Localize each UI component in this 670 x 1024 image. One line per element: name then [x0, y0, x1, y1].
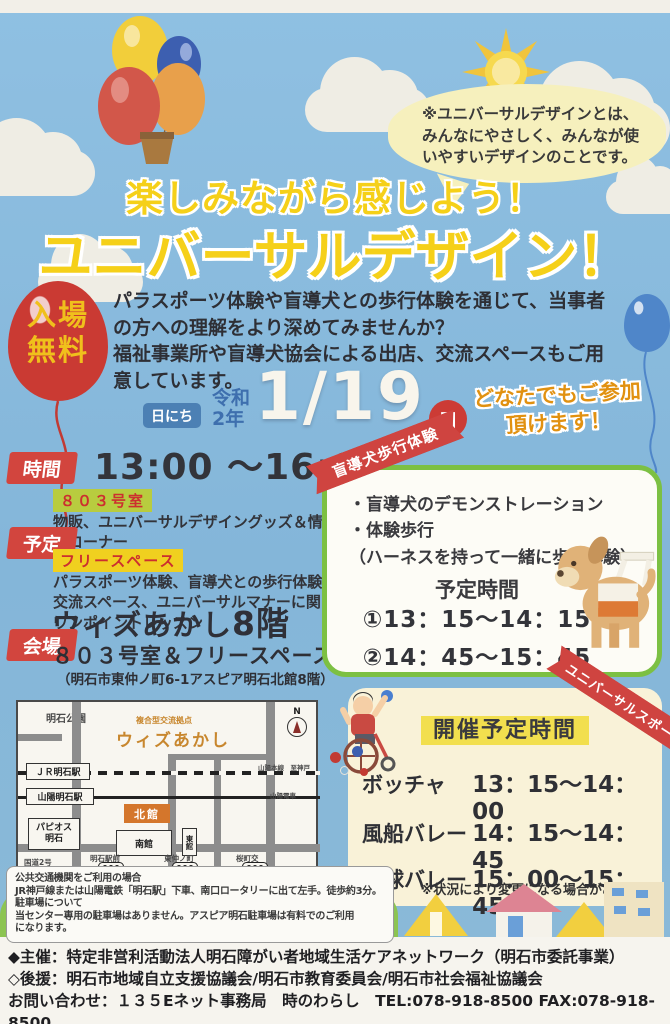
room-803-tag: ８０３号室 [53, 489, 152, 512]
access-map: 明石公園 複合型交流拠点 ウィズあかし N ＪＲ明石駅 山陽明石駅 山陽本線 至… [16, 700, 318, 868]
papios-line: パピオス [36, 823, 72, 834]
map-facility-tag: 複合型交流拠点 [136, 715, 192, 726]
access-line: JR神戸線または山陽電鉄「明石駅」下車、南口ロータリーに出て左手。徒歩約3分。 [15, 886, 385, 899]
house-door [508, 916, 523, 937]
map-station-sanyo: 山陽明石駅 [26, 788, 94, 805]
admission-line: 無料 [8, 333, 108, 368]
admission-line: 入場 [8, 298, 108, 333]
photo-paper-edge [0, 0, 670, 13]
time-label: 時間 [6, 452, 78, 484]
house-roof [486, 884, 562, 912]
intro-line: の方への理解をより深めてみませんか？ [113, 315, 665, 342]
event-date: 1/19 [255, 364, 425, 430]
venue-name: ウィズあかし8階 [52, 597, 290, 645]
venue-name-text: ウィズあかし [52, 608, 232, 642]
era-line: 2年 [212, 409, 250, 430]
access-line: 駐車場について [15, 898, 385, 911]
map-line-sanyo: 山陽電車 [270, 790, 296, 800]
intro-line: パラスポーツ体験や盲導犬との歩行体験を通じて、当事者 [113, 288, 665, 315]
organizer-line: ◆主催：特定非営利活動法人明石障がい者地域生活ケアネットワーク（明石市委託事業） [8, 946, 662, 968]
wheelchair-player-icon [335, 688, 399, 776]
compass-icon: N [284, 707, 310, 737]
boccia-ball-red [360, 768, 368, 776]
boccia-ball-white [340, 766, 349, 775]
access-line: 公共交通機関をご利用の場合 [15, 873, 385, 886]
venue-address: （明石市東仲ノ町6-1アスピア明石北館8階） [57, 668, 334, 688]
tent-stripe [430, 912, 442, 936]
desc-line: 物販、ユニバーサルデザイングッズ＆情報展 [53, 512, 353, 532]
guide-dog-icon [551, 528, 663, 650]
bullet-line: ・盲導犬のデモンストレーション [349, 492, 637, 518]
map-north-building: 北館 [124, 804, 170, 823]
page-title: ユニバーサルデザイン！ [0, 212, 670, 291]
bubble-line: ※ユニバーサルデザインとは、 [422, 104, 648, 126]
boccia-ball-blue [352, 746, 363, 757]
map-east-building: 東館 [182, 828, 197, 856]
map-road [18, 734, 62, 741]
hot-air-balloon-icon [98, 14, 216, 172]
supporter-line: ◇後援：明石市地域自立支援協議会/明石市教育委員会/明石市社会福祉協議会 [8, 968, 662, 990]
house-body [496, 912, 552, 937]
window [612, 888, 624, 896]
bubble-line: みんなにやさしく、みんなが使 [422, 126, 648, 148]
map-road [168, 754, 275, 760]
date-label-badge: 日にち [143, 403, 201, 428]
map-facility-name: ウィズあかし [116, 726, 230, 751]
boccia-ball-red [330, 752, 341, 763]
window [638, 908, 650, 916]
window [614, 906, 626, 914]
footer-organizer-info: ◆主催：特定非営利活動法人明石障がい者地域生活ケアネットワーク（明石市委託事業）… [0, 937, 670, 1024]
desc-line: パラスポーツ体験、盲導犬との歩行体験 [53, 572, 353, 592]
access-info-box: 公共交通機関をご利用の場合 JR神戸線または山陽電鉄「明石駅」下車、南口ロータリ… [6, 866, 394, 943]
access-line: になります。 [15, 923, 385, 936]
bubble-line: いやすいデザインのことです。 [422, 147, 648, 169]
free-space-tag: フリースペース [53, 549, 183, 572]
era-line: 令和 [212, 388, 250, 409]
sports-title: 開催予定時間 [421, 716, 589, 745]
free-admission-balloon: 入場 無料 [8, 281, 108, 401]
window [636, 890, 648, 898]
venue-room: ８０３号室＆フリースペース [52, 640, 334, 670]
map-papios-building: パピオス 明石 [28, 818, 80, 850]
access-line: 当センター専用の駐車場はありません。アスピア明石駐車場は有料でのご利用 [15, 911, 385, 924]
sport-name: 風船バレー [362, 818, 472, 848]
flyer-poster: ※ユニバーサルデザインとは、 みんなにやさしく、みんなが使 いやすいデザインのこ… [0, 0, 670, 1024]
map-station-jr: ＪＲ明石駅 [26, 763, 90, 780]
everyone-welcome-note: どなたでもご参加 頂けます！ [473, 377, 643, 442]
compass-n: N [284, 707, 310, 717]
map-line-main: 山陽本線 至神戸 [258, 762, 310, 772]
papios-line: 明石 [45, 834, 63, 845]
room-description: 物販、ユニバーサルデザイングッズ＆情報展 示コーナー [53, 512, 353, 553]
era-text: 令和 2年 [212, 388, 250, 431]
guide-dog-experience-card: ・盲導犬のデモンストレーション ・体験歩行 （ハーネスを持って一緒に歩く体験） … [322, 465, 662, 677]
contact-line: お問い合わせ：１３５Eネット事務局 時のわらし TEL:078-918-8500… [8, 990, 662, 1024]
venue-floor-text: 8階 [232, 604, 290, 643]
